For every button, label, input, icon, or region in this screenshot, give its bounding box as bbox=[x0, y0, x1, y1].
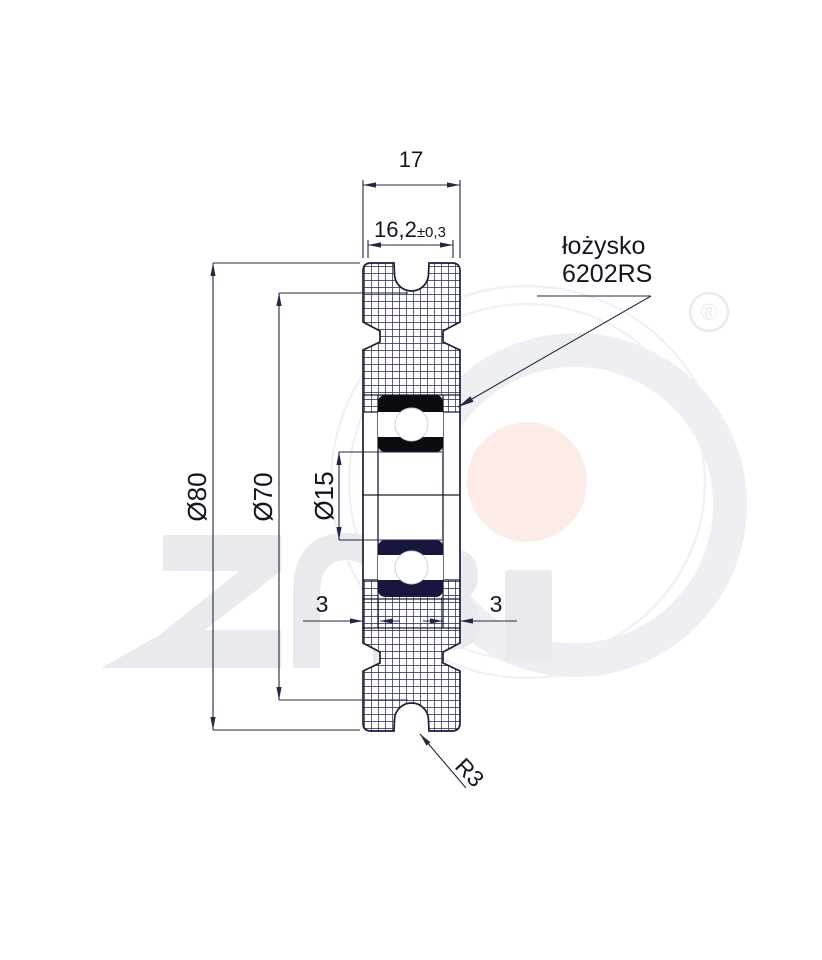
dim-lip-right: 3 bbox=[490, 591, 503, 617]
dim-lip-left: 3 bbox=[316, 591, 329, 617]
watermark-letter-z bbox=[163, 535, 281, 668]
dim-top-width: 17 bbox=[399, 147, 423, 172]
bearing-lower-ball bbox=[395, 551, 428, 584]
hatch-lip-bottom-left bbox=[363, 580, 378, 628]
watermark-dot bbox=[467, 422, 587, 542]
dim-groove-radius: R3 bbox=[450, 753, 489, 792]
technical-drawing-canvas: ® bbox=[0, 0, 822, 960]
hatch-lip-bottom-right bbox=[443, 580, 460, 628]
dim-root-diameter: Ø70 bbox=[248, 472, 278, 521]
dim-groove-width-tolerance: ±0,3 bbox=[417, 224, 446, 241]
watermark-letter-z-tail bbox=[101, 633, 163, 668]
hatch-lip-top-left bbox=[363, 395, 378, 412]
bearing-callout-line2: 6202RS bbox=[562, 260, 652, 288]
dim-bore-diameter: Ø15 bbox=[309, 471, 339, 520]
registered-mark: ® bbox=[701, 299, 718, 325]
dim-groove-width-value: 16,2 bbox=[374, 217, 417, 242]
hatch-bottom-flange bbox=[363, 628, 460, 731]
bearing-upper-ball bbox=[395, 408, 428, 441]
hatch-under-bearing bbox=[378, 597, 443, 628]
dim-outer-diameter: Ø80 bbox=[182, 472, 212, 521]
bearing-callout-line1: łożysko bbox=[562, 232, 645, 260]
hatch-lip-top-right bbox=[443, 395, 460, 412]
pulley-drawing: ® bbox=[0, 0, 822, 960]
dim-groove-width: 16,2±0,3 bbox=[374, 217, 446, 242]
watermark-letter-i-stem bbox=[505, 570, 552, 660]
